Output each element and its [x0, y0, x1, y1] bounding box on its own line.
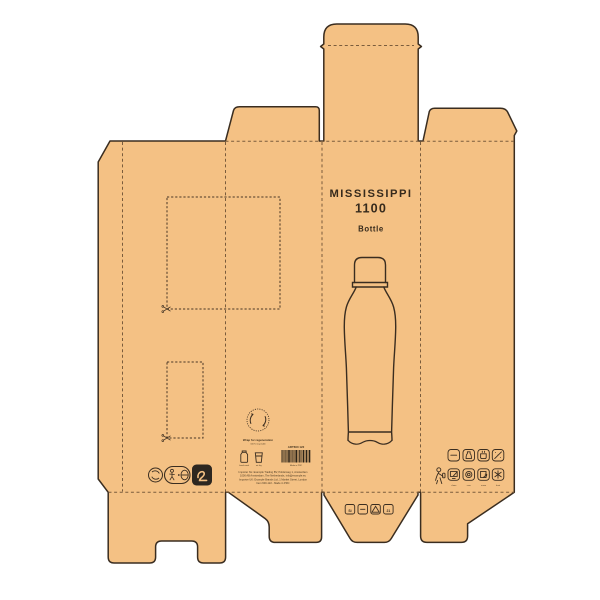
dieline-outline [98, 24, 517, 563]
material-code-1: Si [348, 509, 351, 513]
feature-label-3: reuse [481, 484, 487, 487]
material-code-4: 21 [387, 509, 391, 513]
feature-label-4: frost [496, 484, 500, 487]
barcode-top-label: ART600 122 [288, 445, 305, 449]
feature-label-1: clean [451, 485, 457, 487]
legal-line-3: Importer UK: Example Brands Ltd, 1 Marke… [239, 478, 308, 482]
barcode-bottom-label: Made in PRC [290, 465, 303, 467]
legal-line-1: Importer NL: Example Trading BV, Polderw… [239, 470, 308, 474]
dieline-drawing: MISSISSIPPI 1100 Bottle [0, 0, 600, 600]
product-model: 1100 [355, 202, 387, 216]
legal-line-2: 1000 AB Amsterdam, The Netherlands, info… [240, 474, 306, 478]
care-label-2: air dry [256, 464, 263, 467]
care-label-1: hand wash [239, 465, 250, 467]
product-subtitle: Bottle [358, 225, 384, 234]
barcode [282, 450, 311, 463]
product-title: MISSISSIPPI [329, 188, 412, 200]
packaging-dieline: MISSISSIPPI 1100 Bottle [0, 0, 600, 600]
paper-grade-badge [192, 465, 212, 486]
legal-line-4: Item 600-122 - Made in PRC [256, 481, 289, 485]
eco-stamp-caption: Wrap for regeneration [243, 438, 273, 442]
eco-stamp-caption2: 100% recyclable [250, 442, 266, 445]
dot-separator [178, 474, 180, 476]
